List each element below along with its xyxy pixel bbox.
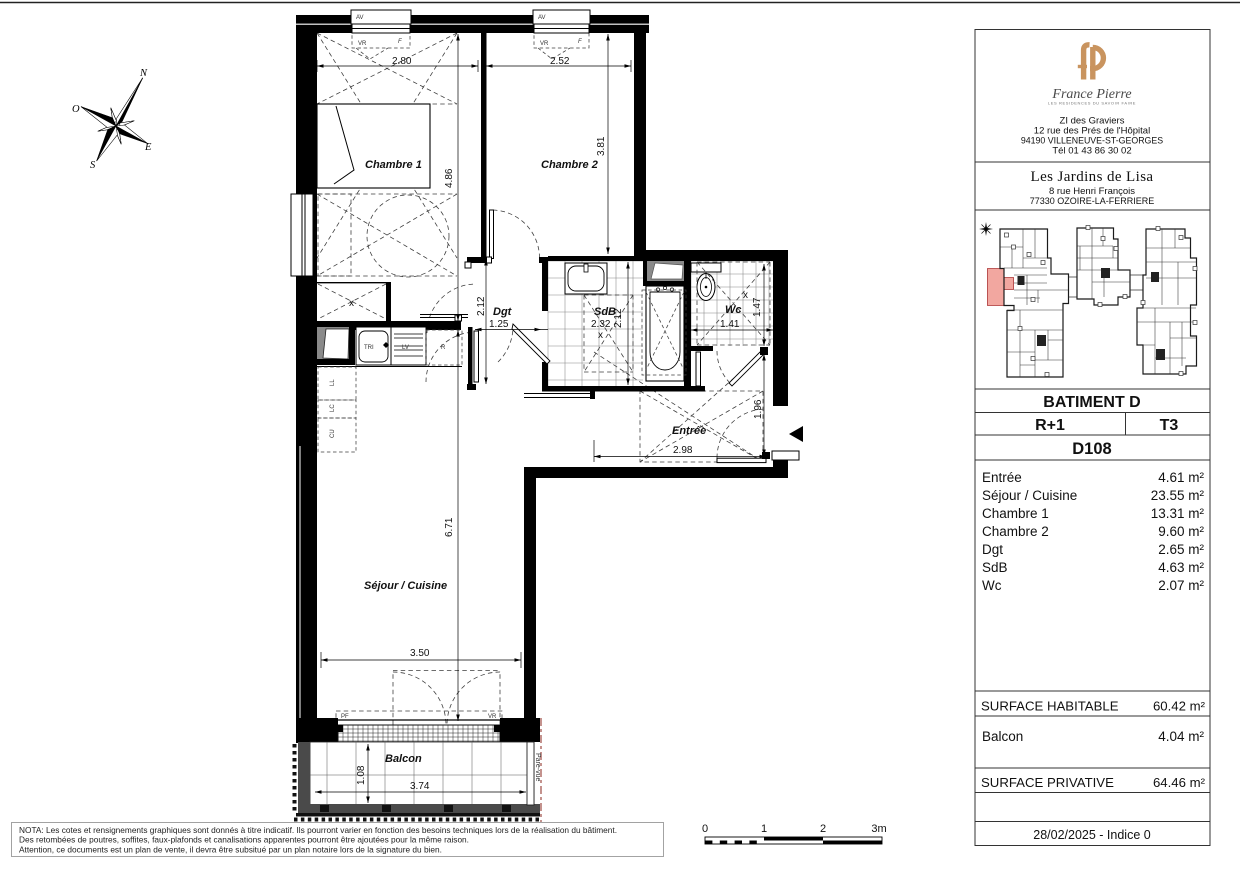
svg-text:Balcon: Balcon [982,729,1023,744]
svg-text:Séjour / Cuisine: Séjour / Cuisine [364,580,447,592]
svg-text:CU: CU [330,429,336,438]
svg-text:Chambre 1: Chambre 1 [982,506,1049,521]
svg-text:Chambre 2: Chambre 2 [982,524,1049,539]
svg-text:AV: AV [356,15,364,21]
svg-text:S: S [90,160,96,171]
svg-text:1.25: 1.25 [489,319,509,330]
svg-text:13.31 m²: 13.31 m² [1151,506,1205,521]
svg-text:2.12: 2.12 [613,308,624,328]
svg-text:3m: 3m [871,823,886,835]
svg-text:94190 VILLENEUVE-ST-GEORGES: 94190 VILLENEUVE-ST-GEORGES [1021,136,1163,146]
svg-text:VR: VR [540,41,549,47]
svg-text:x: x [349,298,354,309]
svg-text:2.52: 2.52 [550,56,570,67]
svg-text:Chambre 1: Chambre 1 [365,159,422,171]
svg-text:3.74: 3.74 [410,781,430,792]
svg-text:1.41: 1.41 [720,319,740,330]
svg-text:Balcon: Balcon [385,753,422,765]
svg-text:x: x [743,290,748,301]
svg-text:4.04 m²: 4.04 m² [1158,729,1204,744]
svg-text:Dgt: Dgt [493,306,513,318]
svg-text:2.32: 2.32 [591,319,611,330]
svg-text:Wc: Wc [982,578,1002,593]
svg-text:0: 0 [702,823,708,835]
svg-text:Tél 01 43 86 30 02: Tél 01 43 86 30 02 [1052,146,1131,157]
svg-text:77330 OZOIRE-LA-FERRIERE: 77330 OZOIRE-LA-FERRIERE [1030,196,1155,206]
svg-text:Séjour / Cuisine: Séjour / Cuisine [982,488,1077,503]
svg-text:Wc: Wc [725,304,742,316]
svg-text:2: 2 [820,823,826,835]
svg-text:AV: AV [538,15,546,21]
svg-text:F: F [578,39,582,45]
svg-text:3.81: 3.81 [596,136,607,156]
svg-text:O: O [72,104,80,115]
svg-text:3.50: 3.50 [410,648,430,659]
svg-text:2.65 m²: 2.65 m² [1158,542,1204,557]
svg-text:VR: VR [358,41,367,47]
svg-text:T3: T3 [1160,417,1179,434]
svg-text:6.71: 6.71 [444,517,455,537]
svg-text:60.42 m²: 60.42 m² [1153,699,1206,714]
svg-text:9.60 m²: 9.60 m² [1158,524,1204,539]
svg-text:4.63 m²: 4.63 m² [1158,560,1204,575]
svg-text:28/02/2025 - Indice 0: 28/02/2025 - Indice 0 [1033,828,1150,842]
svg-text:SdB: SdB [982,560,1008,575]
svg-text:N: N [139,68,148,79]
svg-text:Chambre 2: Chambre 2 [541,159,598,171]
svg-text:TRI: TRI [364,345,374,351]
svg-text:SURFACE HABITABLE: SURFACE HABITABLE [981,699,1119,714]
svg-text:PF: PF [341,714,349,720]
svg-text:Dgt: Dgt [982,542,1003,557]
svg-text:4.86: 4.86 [444,168,455,188]
svg-text:Entrée: Entrée [672,425,706,437]
svg-text:x: x [598,330,603,341]
svg-text:4.61 m²: 4.61 m² [1158,470,1204,485]
svg-text:F: F [398,39,402,45]
svg-text:1.08: 1.08 [356,765,367,785]
svg-text:1.47: 1.47 [752,297,763,317]
svg-text:LES RESIDENCES DU SAVOIR FAIRE: LES RESIDENCES DU SAVOIR FAIRE [1048,101,1136,106]
svg-text:R+1: R+1 [1035,417,1065,434]
svg-text:D108: D108 [1072,440,1111,458]
svg-text:Attention, ce documents est un: Attention, ce documents est un plan de v… [19,844,442,854]
svg-text:2.98: 2.98 [673,445,693,456]
svg-text:2.07 m²: 2.07 m² [1158,578,1204,593]
svg-text:Les Jardins de Lisa: Les Jardins de Lisa [1031,169,1154,185]
svg-text:1: 1 [761,823,767,835]
svg-text:LV: LV [402,345,409,351]
svg-text:E: E [144,142,152,153]
svg-text:Des retombées de poutres, soff: Des retombées de poutres, soffites, faux… [19,835,469,845]
svg-text:SURFACE PRIVATIVE: SURFACE PRIVATIVE [981,775,1114,790]
svg-text:23.55 m²: 23.55 m² [1151,488,1205,503]
svg-text:LL: LL [330,379,336,386]
svg-text:BATIMENT D: BATIMENT D [1043,394,1140,411]
svg-text:64.46 m²: 64.46 m² [1153,775,1206,790]
svg-text:2.80: 2.80 [392,56,412,67]
svg-text:2.12: 2.12 [476,296,487,316]
svg-text:VR: VR [488,714,497,720]
svg-text:Pare-vue: Pare-vue [534,753,541,782]
svg-text:NOTA: Les cotes et rensignemen: NOTA: Les cotes et rensignements graphiq… [19,825,617,835]
svg-text:LC: LC [330,404,336,412]
svg-text:Entrée: Entrée [982,470,1022,485]
svg-text:R: R [441,345,446,351]
svg-text:1.96: 1.96 [753,399,764,419]
